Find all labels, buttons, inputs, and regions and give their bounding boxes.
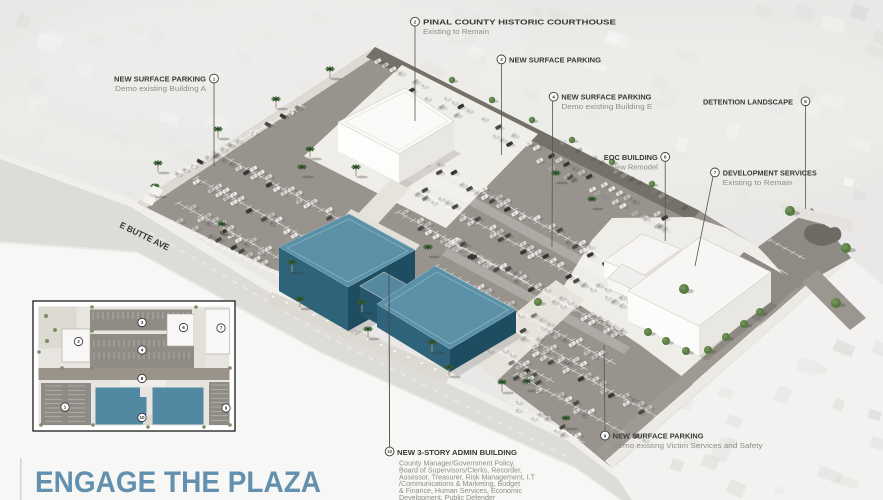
svg-text:6: 6 <box>664 155 667 161</box>
svg-text:PINAL COUNTY HISTORIC COURTHOU: PINAL COUNTY HISTORIC COURTHOUSE <box>423 18 616 27</box>
svg-text:9: 9 <box>225 406 228 411</box>
svg-text:Demo existing Victim Services: Demo existing Victim Services and Safety <box>613 441 763 450</box>
svg-text:4: 4 <box>141 348 144 353</box>
svg-text:Existing to Remain: Existing to Remain <box>423 27 489 36</box>
svg-text:7: 7 <box>220 326 223 331</box>
svg-text:Development, Public Defender: Development, Public Defender <box>399 494 496 500</box>
svg-text:1: 1 <box>213 76 216 82</box>
svg-text:NEW SURFACE PARKING: NEW SURFACE PARKING <box>561 93 651 102</box>
svg-text:ENGAGE THE PLAZA: ENGAGE THE PLAZA <box>35 466 321 499</box>
svg-text:New Remodel: New Remodel <box>611 162 658 171</box>
svg-text:10: 10 <box>387 449 392 454</box>
svg-text:6: 6 <box>182 325 185 330</box>
svg-text:5: 5 <box>804 99 807 105</box>
svg-text:NEW SURFACE PARKING: NEW SURFACE PARKING <box>613 432 704 441</box>
svg-text:2: 2 <box>414 19 417 25</box>
svg-text:3: 3 <box>141 320 144 325</box>
svg-text:7: 7 <box>714 170 717 176</box>
svg-text:9: 9 <box>604 433 607 439</box>
svg-text:NEW 3-STORY ADMIN BUILDING: NEW 3-STORY ADMIN BUILDING <box>397 448 517 457</box>
svg-text:10: 10 <box>139 415 145 420</box>
svg-text:NEW SURFACE PARKING: NEW SURFACE PARKING <box>509 55 601 64</box>
svg-text:Demo existing Building A: Demo existing Building A <box>115 84 206 93</box>
svg-text:DEVELOPMENT SERVICES: DEVELOPMENT SERVICES <box>723 168 817 177</box>
svg-text:4: 4 <box>552 94 555 100</box>
svg-text:2: 2 <box>77 339 80 344</box>
svg-text:1: 1 <box>64 405 67 410</box>
svg-text:8: 8 <box>141 376 144 381</box>
svg-text:DETENTION LANDSCAPE: DETENTION LANDSCAPE <box>703 97 793 106</box>
svg-text:Demo existing Building E: Demo existing Building E <box>561 102 652 111</box>
svg-text:3: 3 <box>500 57 503 63</box>
svg-text:NEW SURFACE PARKING: NEW SURFACE PARKING <box>114 75 206 84</box>
svg-text:EOC BUILDING: EOC BUILDING <box>604 153 658 162</box>
svg-text:Existing to Remain: Existing to Remain <box>723 178 793 187</box>
